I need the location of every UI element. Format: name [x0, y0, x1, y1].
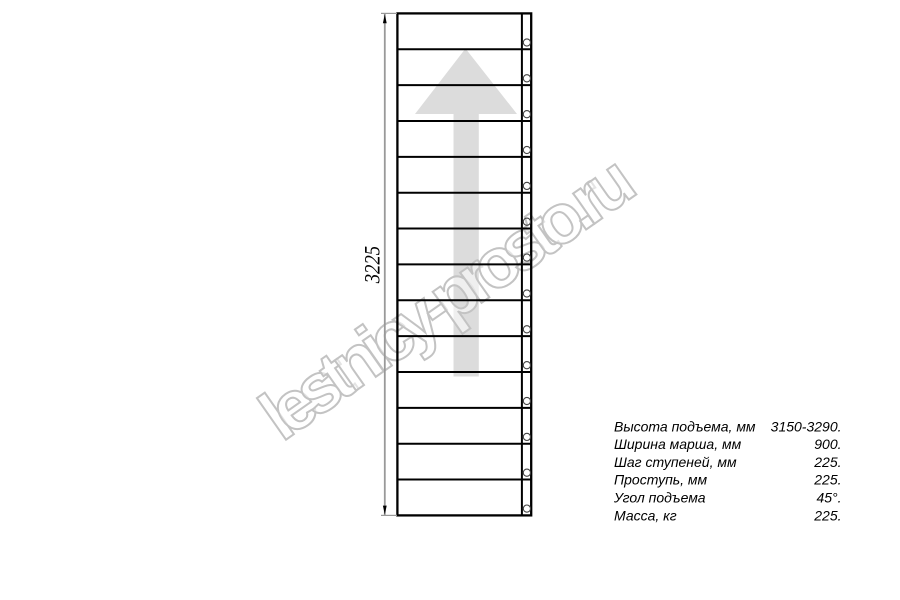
svg-text:3150-3290.: 3150-3290.: [771, 418, 842, 434]
svg-text:3225: 3225: [361, 246, 385, 284]
svg-text:Шаг ступеней, мм: Шаг ступеней, мм: [614, 454, 737, 470]
svg-text:Угол подъема: Угол подъема: [613, 490, 706, 506]
svg-text:Высота подъема, мм: Высота подъема, мм: [614, 418, 756, 434]
svg-text:225.: 225.: [813, 454, 841, 470]
svg-text:900.: 900.: [814, 436, 841, 452]
svg-text:225.: 225.: [813, 472, 841, 488]
svg-text:45°.: 45°.: [816, 490, 841, 506]
svg-text:225.: 225.: [813, 507, 841, 523]
svg-text:Масса, кг: Масса, кг: [614, 507, 677, 523]
svg-text:Ширина марша, мм: Ширина марша, мм: [614, 436, 742, 452]
svg-text:Проступь, мм: Проступь, мм: [614, 472, 708, 488]
